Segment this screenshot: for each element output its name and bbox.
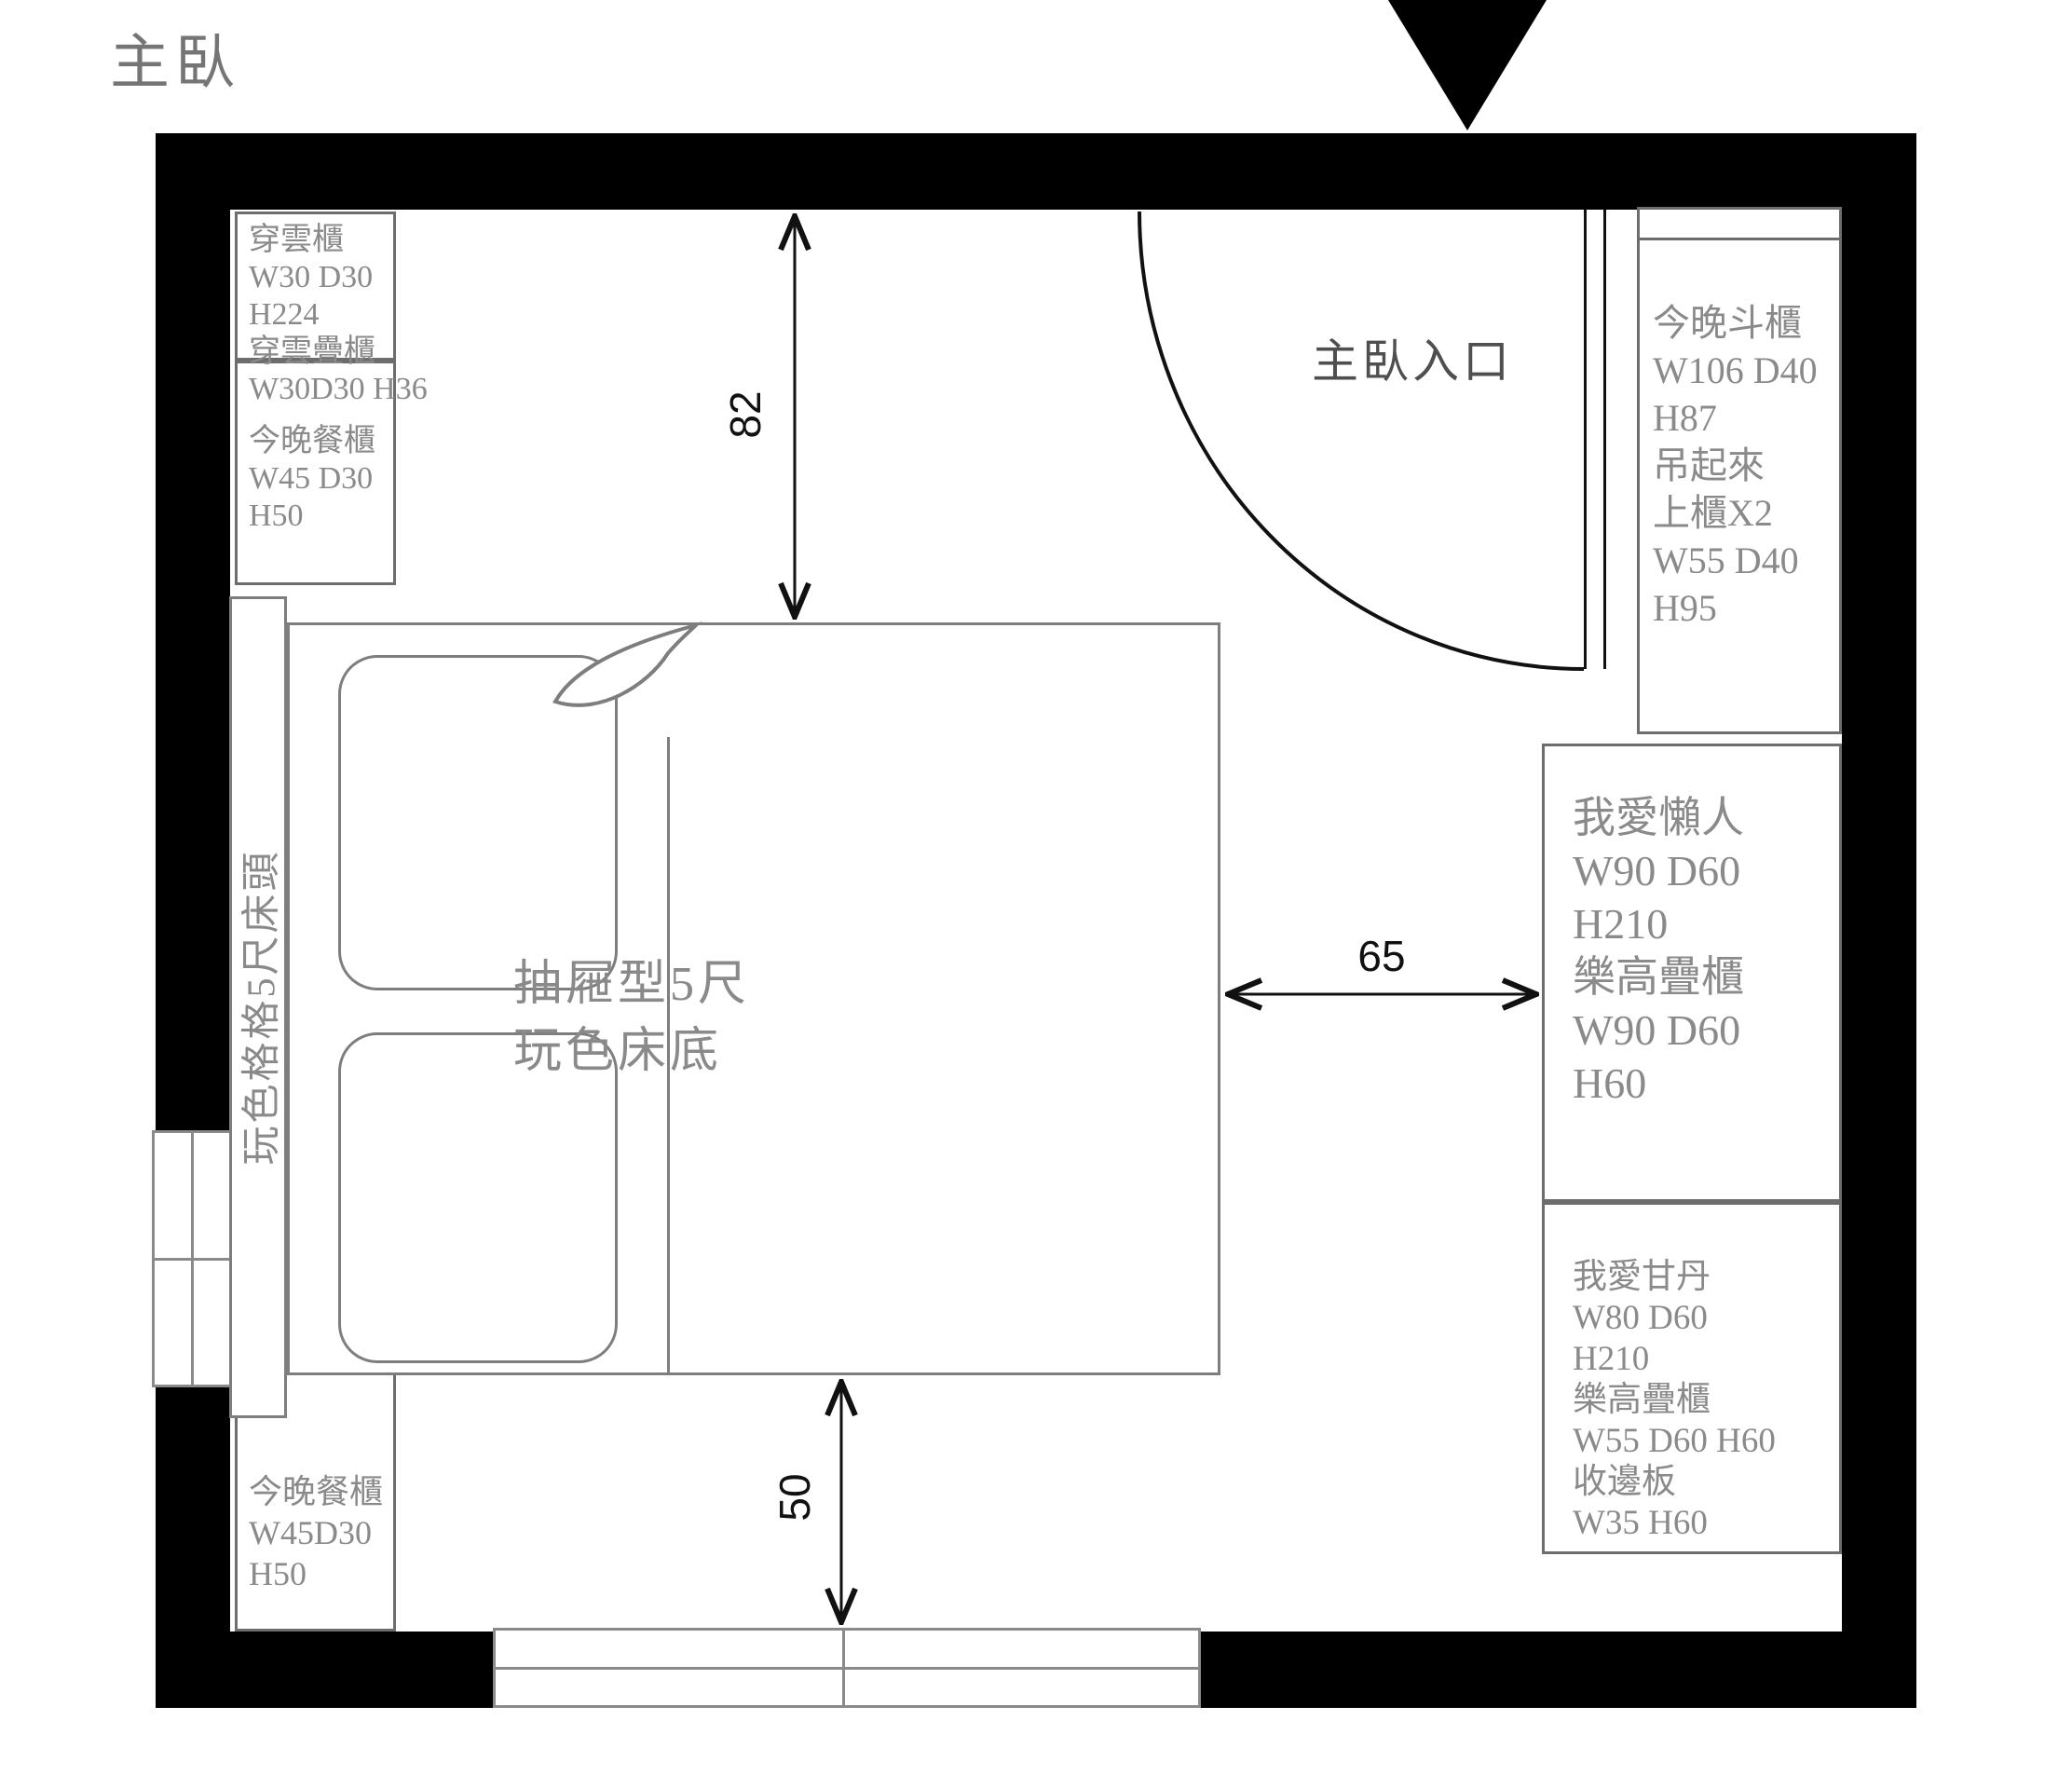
dimension-label-50: 50	[743, 1455, 846, 1539]
door-swing-arc	[1139, 212, 1584, 669]
dimension-label-82: 82	[694, 373, 797, 457]
plan-line-overlay	[0, 0, 2072, 1775]
floor-plan-master-bedroom: 主臥 主臥入口 今晚餐櫃 W45 D30 H50 穿雲櫃 W30 D30 H22…	[0, 0, 2072, 1775]
dimension-label-65: 65	[1326, 930, 1438, 982]
blanket-fold	[555, 625, 696, 705]
